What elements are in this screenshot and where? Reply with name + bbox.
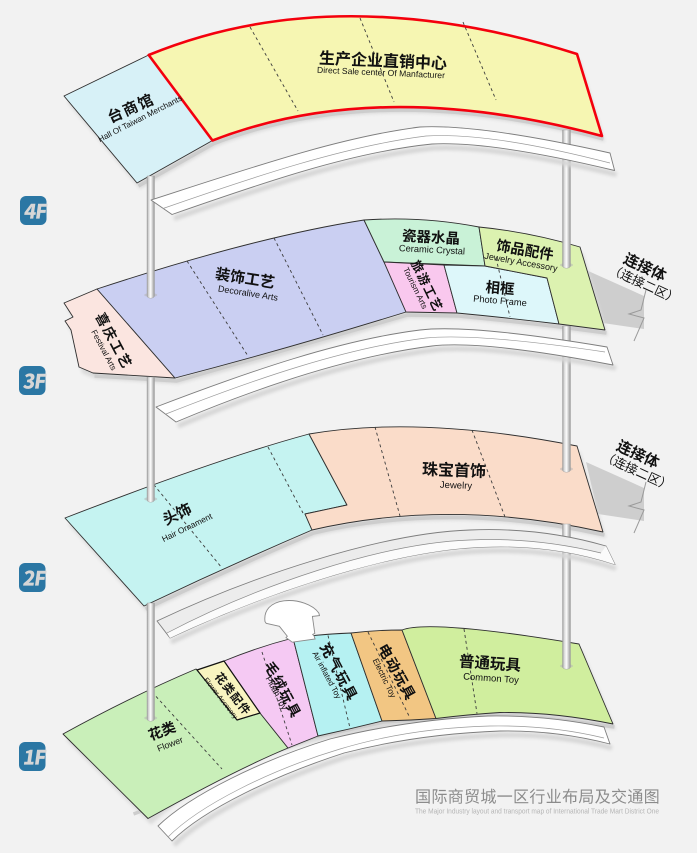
svg-text:Jewelry: Jewelry xyxy=(440,480,473,492)
svg-text:The Major Industry layout and: The Major Industry layout and transport … xyxy=(415,809,659,816)
